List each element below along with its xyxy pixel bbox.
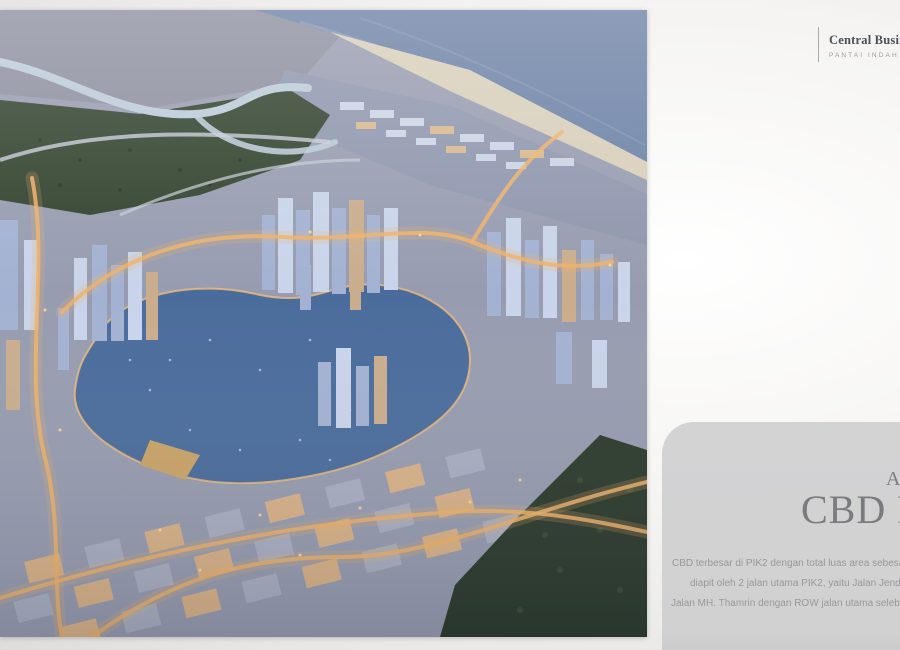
- slide: Central Business PANTAI INDAH A CBD P CB…: [0, 0, 900, 650]
- card-title: CBD P: [801, 490, 900, 530]
- info-card: A CBD P CBD terbesar di PIK2 dengan tota…: [662, 422, 900, 650]
- logo-subtitle: PANTAI INDAH: [829, 52, 899, 59]
- hero-illustration: [0, 10, 647, 637]
- logo-divider: [818, 27, 819, 62]
- hero-image: [0, 10, 647, 637]
- logo-title: Central Business: [829, 33, 900, 48]
- card-body: CBD terbesar di PIK2 dengan total luas a…: [662, 554, 900, 614]
- card-body-line: CBD terbesar di PIK2 dengan total luas a…: [662, 554, 900, 574]
- card-body-line: Jalan MH. Thamrin dengan ROW jalan utama…: [662, 594, 900, 614]
- dusk-overlay: [0, 10, 647, 637]
- card-body-line: diapit oleh 2 jalan utama PIK2, yaitu Ja…: [662, 574, 900, 594]
